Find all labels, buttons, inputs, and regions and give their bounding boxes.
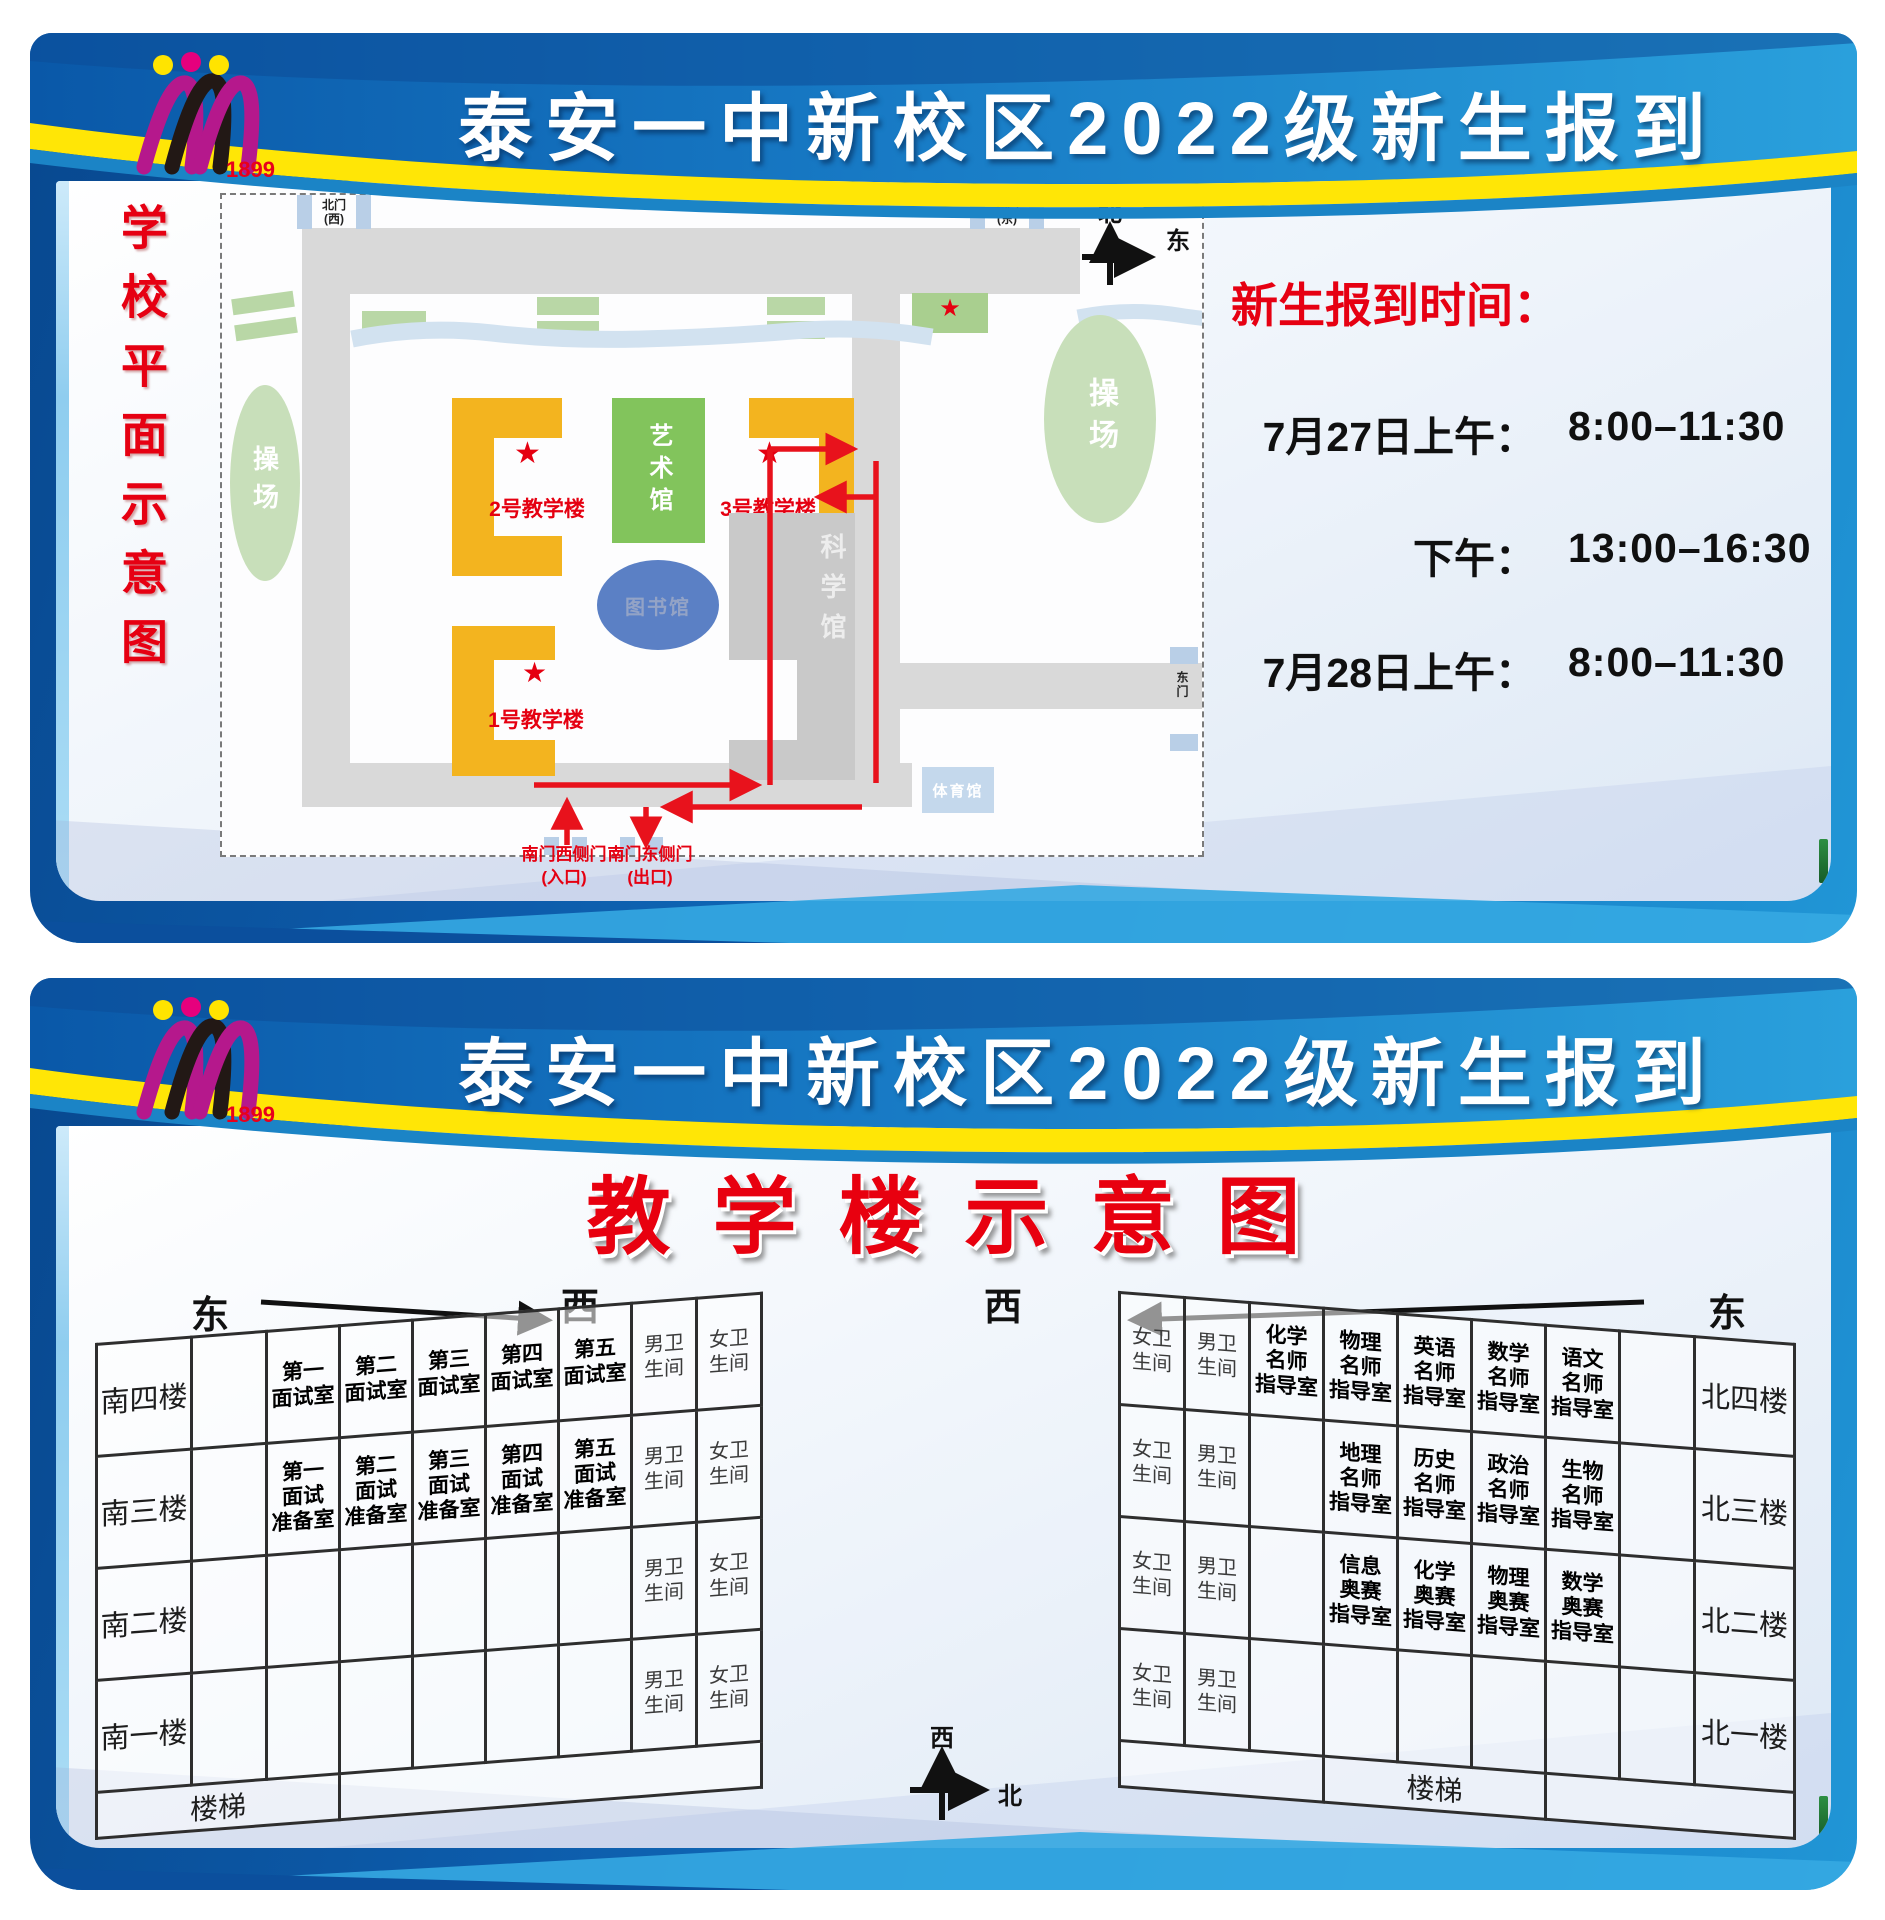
schedule-time: 8:00–11:30: [1568, 403, 1785, 463]
room-cell: 数学 奥赛 指导室: [1546, 1549, 1620, 1667]
schedule-label: 7月28日上午：: [1231, 639, 1536, 699]
empty-cell: [340, 1544, 413, 1662]
poster-campus-map: 学校平面示意图 ★: [30, 33, 1857, 943]
campus-map-side-title: 学校平面示意图: [106, 203, 175, 686]
poster1-content: 学校平面示意图 ★: [56, 181, 1831, 901]
floor-label: 南四楼: [97, 1337, 192, 1456]
room-cell: 地理 名师 指导室: [1324, 1420, 1398, 1538]
empty-cell: [267, 1662, 340, 1780]
floor-label: 南一楼: [97, 1673, 192, 1792]
floor-label: 北二楼: [1695, 1561, 1795, 1681]
schedule-row: 下午： 13:00–16:30: [1231, 525, 1812, 585]
decor-green-bar: [1819, 1796, 1828, 1840]
schedule-label: 7月27日上午：: [1231, 403, 1536, 463]
wc-cell: 男卫 生间: [1185, 1521, 1250, 1638]
wc-cell: 男卫 生间: [632, 1298, 697, 1415]
room-cell: 历史 名师 指导室: [1398, 1426, 1472, 1544]
page: 学校平面示意图 ★: [0, 0, 1885, 1920]
room-cell: 第五 面试室: [559, 1303, 632, 1421]
empty-cell: [559, 1527, 632, 1645]
route-arrows: [222, 195, 1202, 855]
school-logo: 1899: [130, 992, 300, 1127]
empty-cell: [559, 1639, 632, 1757]
schedule-title: 新生报到时间：: [1231, 267, 1560, 336]
schedule-time: 13:00–16:30: [1568, 525, 1812, 585]
south-building-table: 南四楼 第一 面试室 第二 面试室 第三 面试室 第四 面试室 第五 面试室 男…: [95, 1292, 763, 1840]
room-cell: 第一 面试室: [267, 1326, 340, 1444]
schedule-row: 7月28日上午： 8:00–11:30: [1231, 639, 1785, 699]
room-cell: 第四 面试 准备室: [486, 1421, 559, 1539]
direction-east-right: 东: [1708, 1282, 1746, 1337]
room-cell: 第一 面试 准备室: [267, 1438, 340, 1556]
wc-cell: 女卫 生间: [1120, 1292, 1185, 1409]
room-cell: 政治 名师 指导室: [1472, 1432, 1546, 1550]
empty-cell: [1250, 1414, 1324, 1532]
poster-building-diagram: 教学楼示意图 东 西 西 东 南四楼 第一 面试室: [30, 978, 1857, 1890]
wc-cell: 男卫 生间: [632, 1522, 697, 1639]
empty-cell: [1472, 1656, 1546, 1774]
room-cell: 英语 名师 指导室: [1398, 1314, 1472, 1432]
wc-cell: 女卫 生间: [1120, 1628, 1185, 1745]
room-cell: 第五 面试 准备室: [559, 1415, 632, 1533]
wc-cell: 女卫 生间: [697, 1293, 762, 1410]
room-cell: 语文 名师 指导室: [1546, 1325, 1620, 1443]
empty-cell: [1546, 1661, 1620, 1779]
floor-label: 北三楼: [1695, 1449, 1795, 1569]
room-cell: 第三 面试室: [413, 1314, 486, 1432]
empty-cell: [1620, 1331, 1695, 1449]
poster2-content: 教学楼示意图 东 西 西 东 南四楼 第一 面试室: [56, 1126, 1831, 1848]
direction-west-right: 西: [984, 1276, 1022, 1331]
campus-map: ★ 操场 操场 ★ 2号教学楼: [220, 193, 1204, 857]
room-cell: 化学 名师 指导室: [1250, 1302, 1324, 1420]
empty-cell: [192, 1331, 267, 1449]
wc-cell: 男卫 生间: [632, 1634, 697, 1751]
empty-cell: [340, 1656, 413, 1774]
wc-cell: 女卫 生间: [1120, 1404, 1185, 1521]
floor-label: 北一楼: [1695, 1673, 1795, 1793]
wc-cell: 男卫 生间: [1185, 1633, 1250, 1750]
room-cell: 第四 面试室: [486, 1309, 559, 1427]
north-building-table: 女卫 生间 男卫 生间 化学 名师 指导室 物理 名师 指导室 英语 名师 指导…: [1118, 1291, 1796, 1840]
room-cell: 化学 奥赛 指导室: [1398, 1538, 1472, 1656]
decor-left-strip: [56, 181, 69, 901]
diagram-compass: 西 北: [896, 1718, 1026, 1834]
wc-cell: 男卫 生间: [632, 1410, 697, 1527]
room-cell: 物理 奥赛 指导室: [1472, 1544, 1546, 1662]
floor-label: 北四楼: [1695, 1337, 1795, 1457]
empty-cell: [486, 1533, 559, 1651]
poster1-title: 泰安一中新校区2022级新生报到: [350, 69, 1827, 176]
schedule-label: 下午：: [1231, 525, 1536, 585]
empty-cell: [192, 1555, 267, 1673]
empty-cell: [1250, 1526, 1324, 1644]
empty-cell: [413, 1650, 486, 1768]
floor-label: 南三楼: [97, 1449, 192, 1568]
room-cell: 数学 名师 指导室: [1472, 1320, 1546, 1438]
room-cell: 第二 面试室: [340, 1320, 413, 1438]
empty-cell: [413, 1538, 486, 1656]
empty-cell: [192, 1667, 267, 1785]
school-logo: 1899: [130, 47, 300, 182]
empty-cell: [486, 1645, 559, 1763]
building-diagram-title: 教学楼示意图: [56, 1150, 1831, 1271]
poster2-title-header: 泰安一中新校区2022级新生报到: [350, 1014, 1827, 1121]
room-cell: 第二 面试 准备室: [340, 1432, 413, 1550]
room-cell: 物理 名师 指导室: [1324, 1308, 1398, 1426]
empty-cell: [1398, 1650, 1472, 1768]
compass-north-label: 北: [998, 1776, 1022, 1811]
empty-cell: [267, 1550, 340, 1668]
wc-cell: 女卫 生间: [1120, 1516, 1185, 1633]
wc-cell: 女卫 生间: [697, 1629, 762, 1746]
wc-cell: 男卫 生间: [1185, 1409, 1250, 1526]
wc-cell: 女卫 生间: [697, 1517, 762, 1634]
logo-year: 1899: [226, 1102, 275, 1127]
empty-cell: [1620, 1443, 1695, 1561]
schedule-time: 8:00–11:30: [1568, 639, 1785, 699]
room-cell: 信息 奥赛 指导室: [1324, 1532, 1398, 1650]
room-cell: 第三 面试 准备室: [413, 1426, 486, 1544]
floor-label: 南二楼: [97, 1561, 192, 1680]
wc-cell: 男卫 生间: [1185, 1297, 1250, 1414]
schedule-row: 7月27日上午： 8:00–11:30: [1231, 403, 1785, 463]
empty-cell: [1250, 1638, 1324, 1756]
empty-cell: [1324, 1644, 1398, 1762]
empty-cell: [1620, 1555, 1695, 1673]
room-cell: 生物 名师 指导室: [1546, 1437, 1620, 1555]
wc-cell: 女卫 生间: [697, 1405, 762, 1522]
empty-cell: [1620, 1667, 1695, 1785]
decor-green-bar: [1819, 839, 1828, 883]
direction-east-left: 东: [191, 1284, 229, 1339]
empty-cell: [192, 1443, 267, 1561]
logo-year: 1899: [226, 157, 275, 182]
